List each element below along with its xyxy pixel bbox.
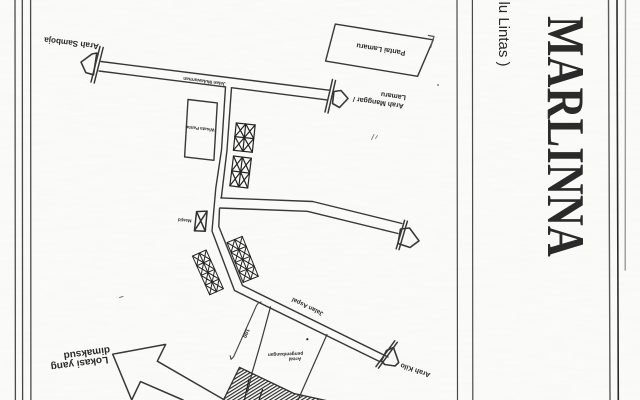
svg-text:lu Lintas ): lu Lintas ) — [495, 2, 512, 67]
svg-text:Areal: Areal — [288, 355, 301, 361]
svg-text:MARLINNA: MARLINNA — [536, 16, 594, 257]
